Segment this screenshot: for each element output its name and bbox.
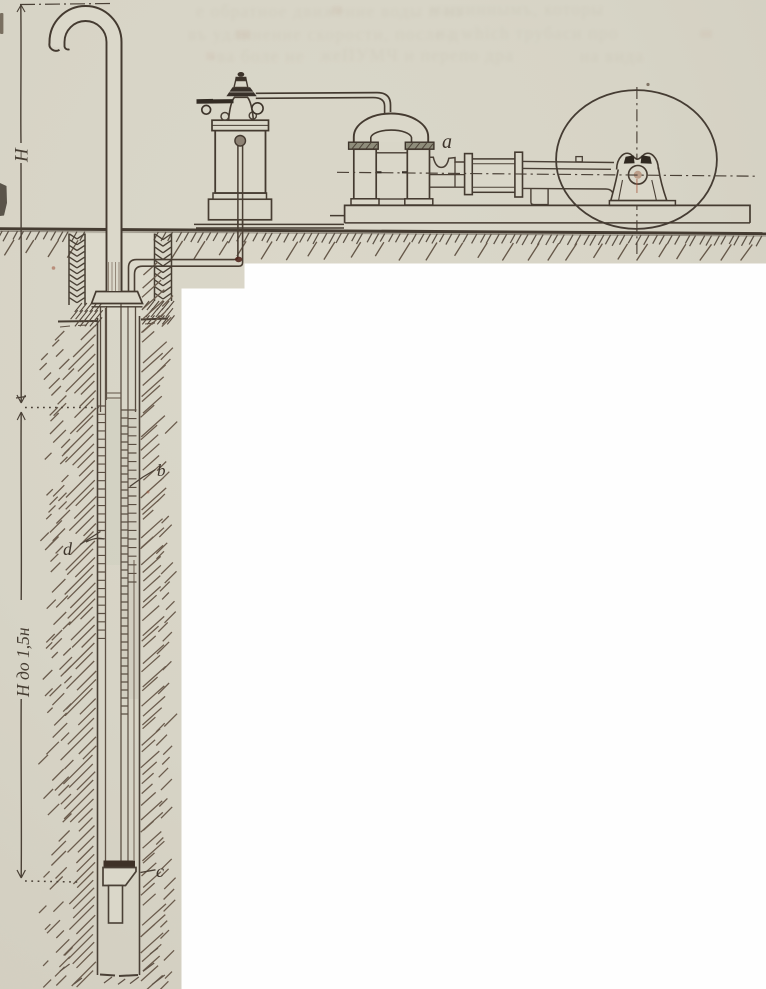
svg-text:d: d bbox=[63, 539, 73, 559]
svg-text:въ удлинение скорости, после д: въ удлинение скорости, после д bbox=[188, 24, 460, 44]
svg-text:c: c bbox=[156, 861, 164, 881]
svg-text:жеПУМЧ и перепо дра: жеПУМЧ и перепо дра bbox=[319, 45, 514, 65]
svg-text:b: b bbox=[157, 461, 166, 480]
svg-text:машиннымъ, которы: машиннымъ, которы bbox=[430, 0, 604, 19]
svg-text:на вида: на вида bbox=[580, 46, 644, 66]
svg-text:Н до 1,5н: Н до 1,5н bbox=[13, 627, 33, 698]
svg-text:е обратное движение воды п из: е обратное движение воды п из bbox=[196, 1, 463, 21]
svg-text:-ва боле не: -ва боле не bbox=[210, 46, 305, 66]
svg-text:Н: Н bbox=[12, 147, 33, 163]
svg-text:на which трубаси про: на which трубаси про bbox=[436, 23, 619, 43]
svg-text:a: a bbox=[442, 131, 452, 153]
